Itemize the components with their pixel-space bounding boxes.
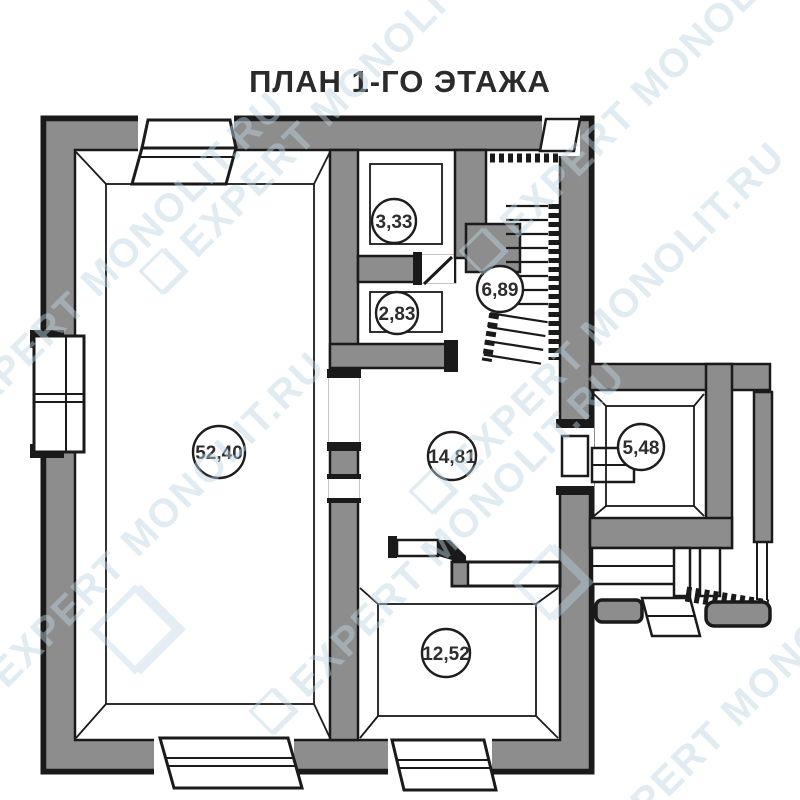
bevel-corner — [360, 716, 378, 738]
bevel-corner — [536, 716, 558, 738]
steps-post-2 — [700, 548, 720, 596]
bevel-corner — [314, 152, 330, 184]
stair-tread — [484, 355, 541, 364]
door-jamb-333-283 — [413, 252, 422, 285]
door-jamb-1252 — [388, 536, 397, 558]
label-text: 12,52 — [422, 644, 470, 665]
wall-1252-gray-end — [452, 562, 468, 586]
bevel-corner — [694, 506, 704, 516]
bevel-corner — [536, 588, 558, 604]
building-outline — [43, 118, 592, 772]
central-notch-jamb-bottom — [327, 498, 361, 503]
bottom-window-2 — [392, 740, 496, 790]
wall-openings — [40, 114, 594, 776]
building-outer-walls — [43, 118, 592, 772]
floor-plan-page: ПЛАН 1-ГО ЭТАЖА — [0, 0, 800, 800]
bevel-corner — [76, 704, 106, 738]
central-wall-door-gap — [329, 378, 359, 442]
room-label-1481: 14,81 — [428, 432, 476, 480]
label-text: 3,33 — [376, 212, 413, 233]
bevel-corner — [594, 506, 606, 516]
steps-tread-right — [706, 602, 770, 626]
bevel-corner — [594, 394, 606, 406]
bottom-window-1 — [160, 738, 302, 788]
top-window-top-face — [142, 120, 236, 148]
room-label-5240: 52,40 — [193, 426, 245, 478]
porch-door-jamb-bottom — [556, 486, 590, 495]
central-wall-notch — [329, 478, 359, 498]
wall-below-283 — [330, 344, 450, 368]
top-window-front-face — [132, 148, 236, 184]
bevel-corner — [314, 704, 330, 738]
label-text: 14,81 — [428, 447, 476, 468]
wall-below-283-cap — [444, 340, 458, 372]
label-text: 6,89 — [482, 280, 519, 301]
room-label-1252: 12,52 — [422, 629, 470, 677]
floor-plan-drawing: 3,33 2,83 6,89 52,40 14,81 5,48 — [0, 0, 800, 800]
room-label-689: 6,89 — [477, 266, 523, 312]
room-label-283: 2,83 — [376, 292, 418, 334]
central-door-jamb-top — [327, 369, 361, 378]
thin-wall-1481-1252 — [397, 540, 438, 556]
porch-outer-post — [754, 392, 772, 542]
room-label-333: 3,33 — [372, 199, 416, 243]
bevel-corner — [76, 152, 106, 184]
central-notch-jamb-top — [327, 474, 361, 479]
top-right-window — [540, 119, 580, 151]
porch-bottom-wall — [590, 518, 732, 548]
outer-wall-ring — [45, 120, 590, 770]
porch-top-beam — [590, 364, 770, 390]
entrance-steps — [592, 542, 770, 636]
room-label-548: 5,48 — [618, 424, 664, 470]
label-text: 52,40 — [195, 443, 243, 464]
bevel-corner — [694, 394, 704, 406]
steps-tread-left — [596, 600, 642, 622]
label-text: 5,48 — [623, 438, 660, 459]
central-door-jamb-bottom — [327, 442, 361, 451]
label-text: 2,83 — [379, 304, 416, 325]
porch-door-leaf — [562, 436, 588, 476]
porch-door-jamb-top — [556, 419, 590, 428]
bevel-corner — [360, 588, 378, 604]
windows — [30, 119, 580, 790]
